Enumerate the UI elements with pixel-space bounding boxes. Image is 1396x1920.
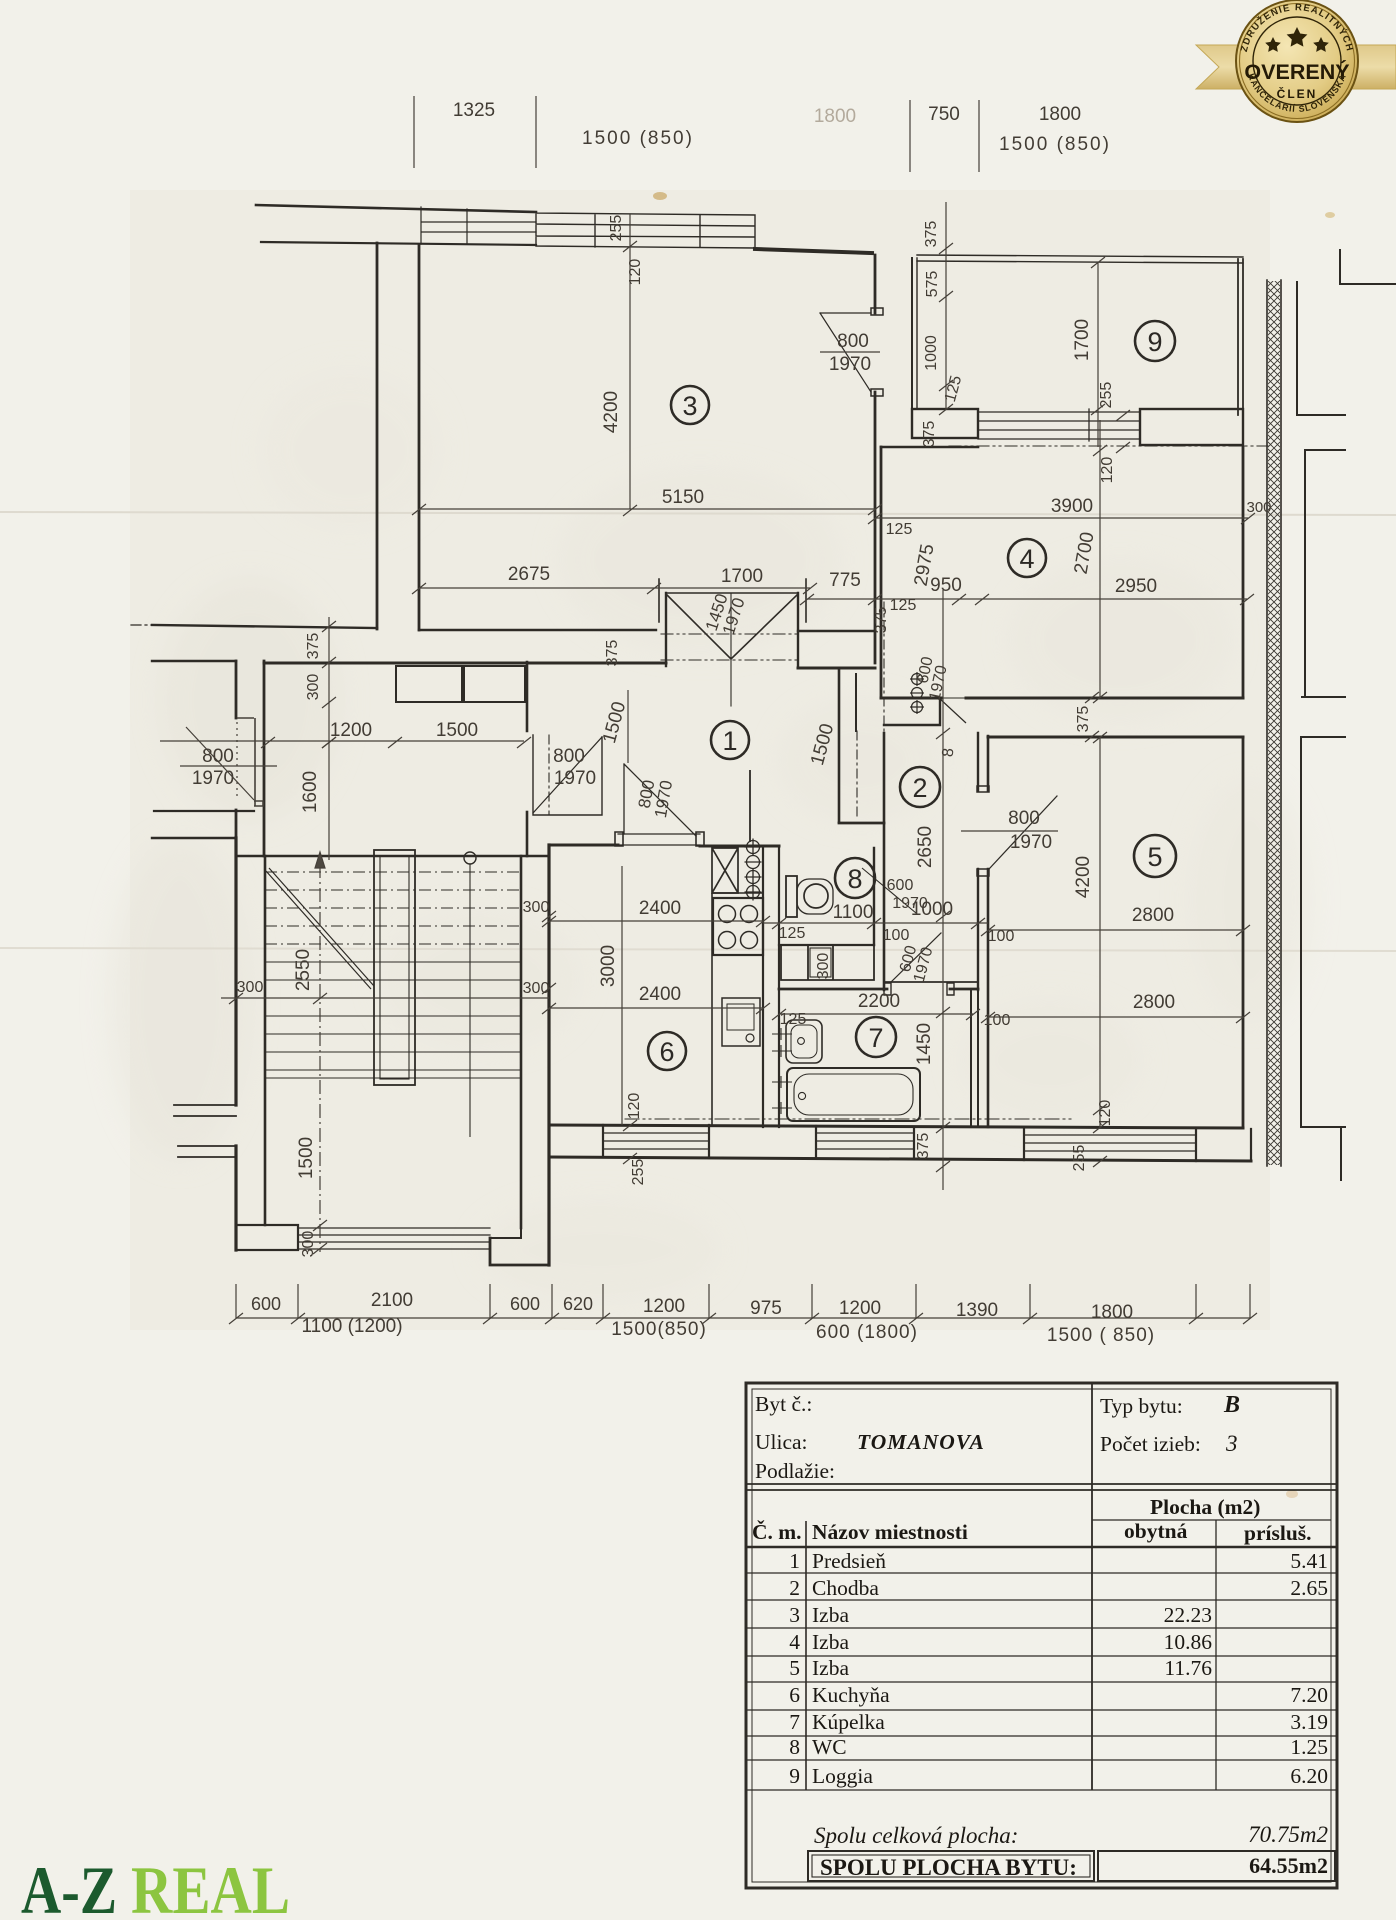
svg-text:Ulica:: Ulica: [755,1430,808,1454]
svg-text:375: 375 [923,221,940,248]
svg-text:64.55m2: 64.55m2 [1249,1853,1328,1878]
svg-text:100: 100 [984,1012,1011,1029]
svg-text:SPOLU PLOCHA BYTU:: SPOLU PLOCHA BYTU: [820,1855,1077,1880]
svg-text:Predsieň: Predsieň [812,1549,886,1573]
svg-text:5.41: 5.41 [1290,1549,1328,1573]
svg-text:5: 5 [789,1656,800,1680]
svg-text:Plocha (m2): Plocha (m2) [1150,1495,1260,1519]
svg-text:2950: 2950 [1115,576,1157,597]
svg-text:1800: 1800 [1091,1302,1133,1323]
svg-text:7: 7 [868,1023,883,1053]
svg-text:800: 800 [202,746,234,767]
svg-text:10.86: 10.86 [1164,1630,1213,1654]
svg-text:Chodba: Chodba [812,1576,879,1600]
svg-text:TOMANOVA: TOMANOVA [857,1430,985,1454]
svg-text:2650: 2650 [915,826,936,868]
svg-text:300: 300 [300,1231,317,1258]
svg-text:Kúpelka: Kúpelka [812,1710,885,1734]
svg-text:750: 750 [928,104,960,125]
svg-text:1970: 1970 [892,895,928,912]
svg-text:3000: 3000 [598,945,619,987]
svg-text:B: B [1223,1392,1240,1418]
svg-text:1200: 1200 [643,1296,685,1317]
svg-text:1500: 1500 [436,720,478,741]
svg-text:6.20: 6.20 [1290,1764,1328,1788]
svg-text:22.23: 22.23 [1164,1603,1212,1627]
svg-text:3.19: 3.19 [1290,1710,1328,1734]
svg-text:4: 4 [1019,544,1034,574]
svg-text:375: 375 [1075,706,1092,733]
svg-text:1970: 1970 [554,768,596,789]
svg-text:255: 255 [1098,382,1115,409]
svg-text:1200: 1200 [839,1298,881,1319]
svg-text:375: 375 [915,1133,932,1160]
svg-text:255: 255 [630,1159,647,1186]
svg-text:1500 (850): 1500 (850) [999,134,1111,155]
svg-text:2100: 2100 [371,1290,413,1311]
svg-text:3: 3 [789,1603,800,1627]
svg-text:800: 800 [837,331,869,352]
svg-text:5: 5 [1147,842,1162,872]
svg-text:600: 600 [510,1294,540,1314]
svg-text:9: 9 [789,1764,800,1788]
svg-text:600: 600 [887,877,914,894]
svg-text:300: 300 [523,980,550,997]
svg-text:1450: 1450 [914,1023,935,1065]
svg-text:2200: 2200 [858,991,900,1012]
svg-text:620: 620 [563,1294,593,1314]
svg-text:100: 100 [988,928,1015,945]
svg-text:Počet izieb:: Počet izieb: [1100,1432,1201,1456]
svg-text:9: 9 [1147,327,1162,357]
svg-text:120: 120 [1099,457,1116,484]
svg-text:950: 950 [930,575,962,596]
svg-text:8: 8 [940,747,958,757]
svg-text:1800: 1800 [814,106,856,127]
svg-text:575: 575 [924,271,941,298]
svg-text:375: 375 [873,607,890,634]
svg-text:2400: 2400 [639,898,681,919]
svg-text:7.20: 7.20 [1290,1683,1328,1707]
svg-text:2550: 2550 [293,949,314,991]
svg-text:1000: 1000 [923,335,940,371]
svg-text:2400: 2400 [639,984,681,1005]
svg-text:300: 300 [523,899,550,916]
svg-text:120: 120 [627,259,644,286]
svg-text:1800: 1800 [1039,104,1081,125]
svg-text:1970: 1970 [192,768,234,789]
svg-text:Loggia: Loggia [812,1764,873,1788]
svg-text:100: 100 [883,927,910,944]
svg-text:1600: 1600 [300,771,321,813]
svg-text:6: 6 [659,1037,674,1067]
svg-text:2675: 2675 [508,564,550,585]
svg-text:OVERENÝ: OVERENÝ [1244,59,1349,84]
svg-text:375: 375 [305,633,322,660]
svg-text:1.25: 1.25 [1290,1735,1328,1759]
svg-text:1500 (850): 1500 (850) [582,128,694,149]
svg-text:1390: 1390 [956,1300,998,1321]
svg-text:1325: 1325 [453,100,495,121]
svg-text:775: 775 [829,570,861,591]
svg-text:600: 600 [251,1294,281,1314]
svg-text:Názov miestnosti: Názov miestnosti [812,1520,968,1544]
svg-text:obytná: obytná [1124,1519,1188,1543]
svg-text:Izba: Izba [812,1630,849,1654]
svg-text:300: 300 [237,979,264,996]
svg-text:300: 300 [305,674,322,701]
svg-text:600 (1800): 600 (1800) [816,1322,918,1343]
svg-text:120: 120 [626,1093,643,1120]
svg-text:Podlažie:: Podlažie: [755,1459,835,1483]
svg-text:5150: 5150 [662,487,704,508]
svg-text:Byt č.:: Byt č.: [755,1392,812,1416]
svg-text:WC: WC [812,1735,847,1759]
svg-text:300: 300 [815,953,832,980]
svg-text:3: 3 [1225,1431,1238,1456]
svg-text:4200: 4200 [601,391,622,433]
svg-text:1970: 1970 [1010,832,1052,853]
svg-text:A-Z: A-Z [21,1852,117,1920]
svg-text:1500 ( 850): 1500 ( 850) [1047,1325,1155,1346]
svg-text:Kuchyňa: Kuchyňa [812,1683,890,1707]
svg-text:2: 2 [789,1576,800,1600]
svg-text:ČLEN: ČLEN [1277,86,1318,101]
svg-text:1: 1 [722,726,737,756]
svg-text:1100: 1100 [833,902,874,923]
svg-text:2.65: 2.65 [1290,1576,1328,1600]
svg-text:Izba: Izba [812,1656,849,1680]
svg-text:7: 7 [789,1710,800,1734]
svg-text:3900: 3900 [1051,496,1093,517]
svg-text:1500: 1500 [296,1137,317,1179]
svg-text:1970: 1970 [829,354,871,375]
svg-text:2: 2 [912,773,927,803]
svg-text:Izba: Izba [812,1603,849,1627]
svg-text:1100 (1200): 1100 (1200) [301,1316,402,1337]
svg-text:120: 120 [1097,1100,1114,1127]
svg-text:800: 800 [553,746,585,767]
svg-text:255: 255 [608,215,625,242]
svg-text:125: 125 [886,521,913,538]
svg-text:4: 4 [789,1630,800,1654]
svg-text:Typ bytu:: Typ bytu: [1100,1394,1183,1418]
svg-text:1200: 1200 [330,720,372,741]
svg-text:125: 125 [890,597,917,614]
svg-text:1: 1 [789,1549,800,1573]
svg-text:125: 125 [780,1011,807,1028]
svg-text:8: 8 [789,1735,800,1759]
svg-text:1700: 1700 [721,566,763,587]
svg-text:1700: 1700 [1072,319,1093,361]
svg-text:6: 6 [789,1683,800,1707]
svg-text:Č. m.: Č. m. [752,1520,802,1544]
svg-text:255: 255 [1071,1145,1088,1172]
svg-text:800: 800 [1008,808,1040,829]
svg-text:300: 300 [1246,499,1271,516]
svg-text:4200: 4200 [1073,856,1094,898]
svg-text:2800: 2800 [1133,992,1175,1013]
svg-text:Spolu celková plocha:: Spolu celková plocha: [814,1823,1018,1848]
svg-text:375: 375 [604,640,621,667]
svg-text:125: 125 [779,925,806,942]
svg-text:70.75m2: 70.75m2 [1248,1822,1328,1847]
svg-text:3: 3 [682,391,697,421]
svg-text:8: 8 [847,864,862,894]
svg-text:prísluš.: prísluš. [1244,1521,1312,1545]
svg-text:375: 375 [921,421,938,448]
svg-text:975: 975 [750,1298,782,1319]
svg-text:REAL: REAL [131,1852,290,1920]
svg-text:1500(850): 1500(850) [611,1319,707,1340]
svg-text:2800: 2800 [1132,905,1174,926]
svg-text:11.76: 11.76 [1164,1656,1212,1680]
